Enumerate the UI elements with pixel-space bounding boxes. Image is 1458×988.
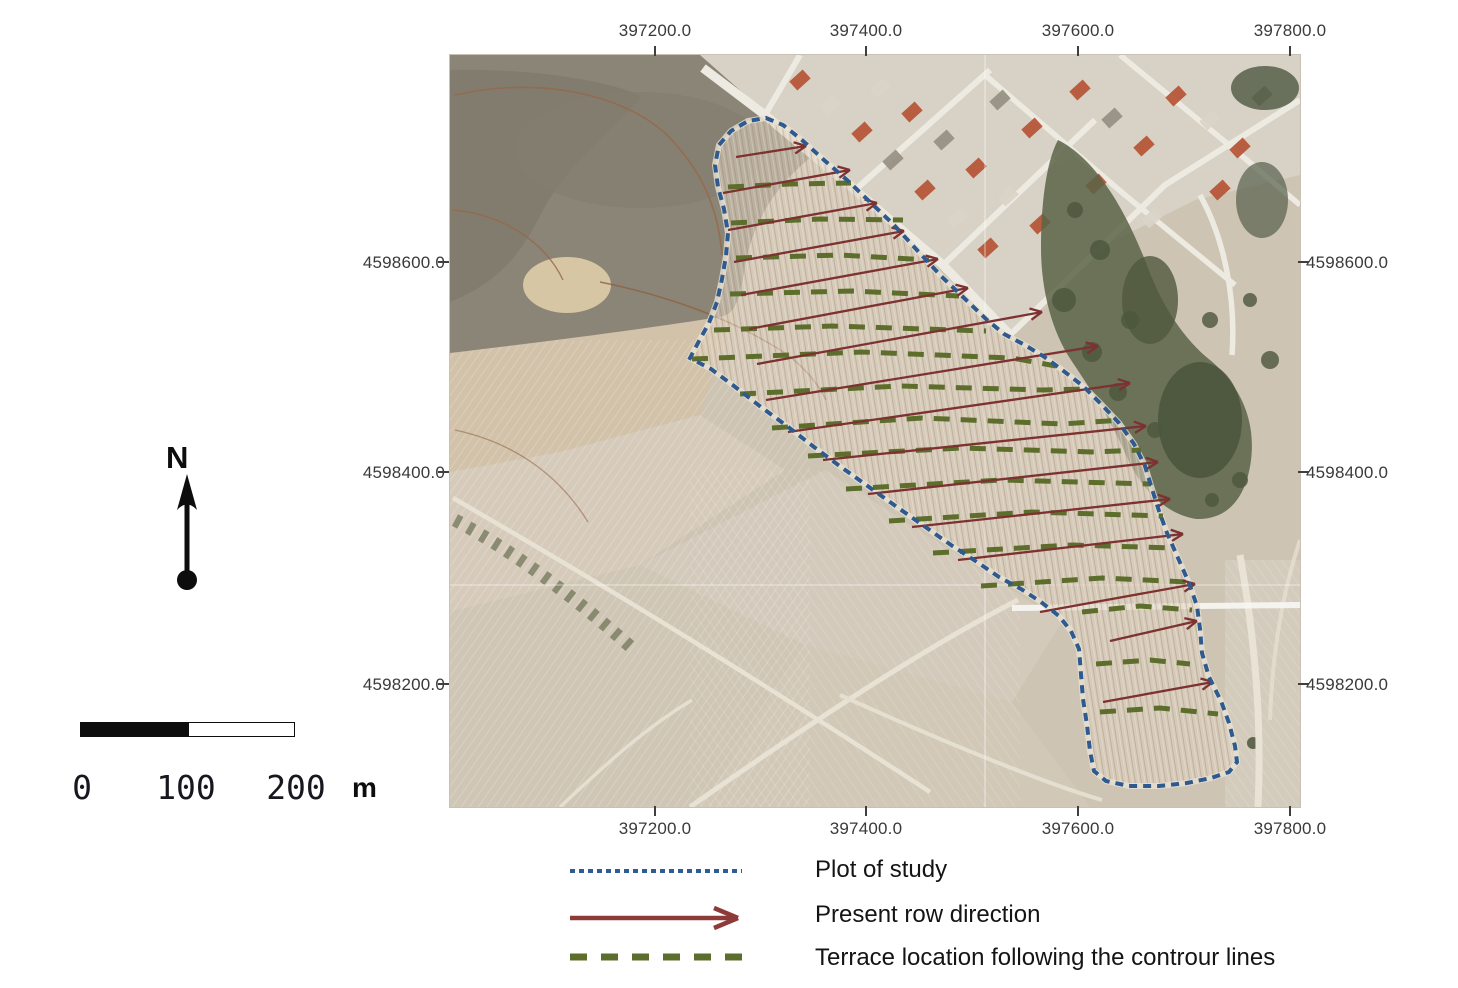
scale-label: 100	[138, 768, 234, 807]
y-tick-label: 4598200.0	[1306, 675, 1398, 695]
x-tick-label: 397400.0	[818, 819, 914, 839]
axis-tick	[865, 46, 867, 56]
x-tick-label: 397200.0	[607, 21, 703, 41]
axis-tick	[654, 806, 656, 816]
legend-label-terrace: Terrace location following the controur …	[815, 944, 1275, 972]
axis-tick	[654, 46, 656, 56]
north-arrow-icon	[160, 472, 214, 622]
x-tick-label: 397200.0	[607, 819, 703, 839]
scale-unit-label: m	[352, 772, 377, 804]
y-tick-label: 4598200.0	[353, 675, 445, 695]
axis-tick	[1298, 261, 1309, 263]
scale-label: 200	[248, 768, 344, 807]
axis-tick	[438, 471, 449, 473]
x-tick-label: 397600.0	[1030, 819, 1126, 839]
scale-label: 0	[62, 768, 102, 807]
axis-tick	[438, 261, 449, 263]
row-direction-arrow-swatch	[568, 903, 758, 933]
satellite-map-canvas	[450, 55, 1300, 807]
axis-tick	[865, 806, 867, 816]
y-tick-label: 4598600.0	[1306, 253, 1398, 273]
x-tick-label: 397800.0	[1242, 21, 1338, 41]
axis-tick	[438, 683, 449, 685]
plot-of-study-line-swatch	[568, 864, 744, 878]
north-label: N	[166, 440, 188, 476]
axis-tick	[1077, 806, 1079, 816]
scale-bar-empty-segment	[188, 722, 295, 737]
scale-bar-filled-segment	[80, 722, 188, 737]
terrace-line-swatch	[568, 949, 744, 965]
axis-tick	[1298, 683, 1309, 685]
legend-arrow	[570, 908, 738, 928]
y-tick-label: 4598600.0	[353, 253, 445, 273]
x-tick-label: 397600.0	[1030, 21, 1126, 41]
legend-label-plot-of-study: Plot of study	[815, 856, 947, 884]
y-tick-label: 4598400.0	[1306, 463, 1398, 483]
axis-tick	[1289, 46, 1291, 56]
axis-tick	[1077, 46, 1079, 56]
legend-label-row-direction: Present row direction	[815, 901, 1040, 929]
x-tick-label: 397800.0	[1242, 819, 1338, 839]
axis-tick	[1289, 806, 1291, 816]
y-tick-label: 4598400.0	[353, 463, 445, 483]
x-tick-label: 397400.0	[818, 21, 914, 41]
map-figure: 397200.0 397400.0 397600.0 397800.0 3972…	[0, 0, 1458, 988]
axis-tick	[1298, 471, 1309, 473]
